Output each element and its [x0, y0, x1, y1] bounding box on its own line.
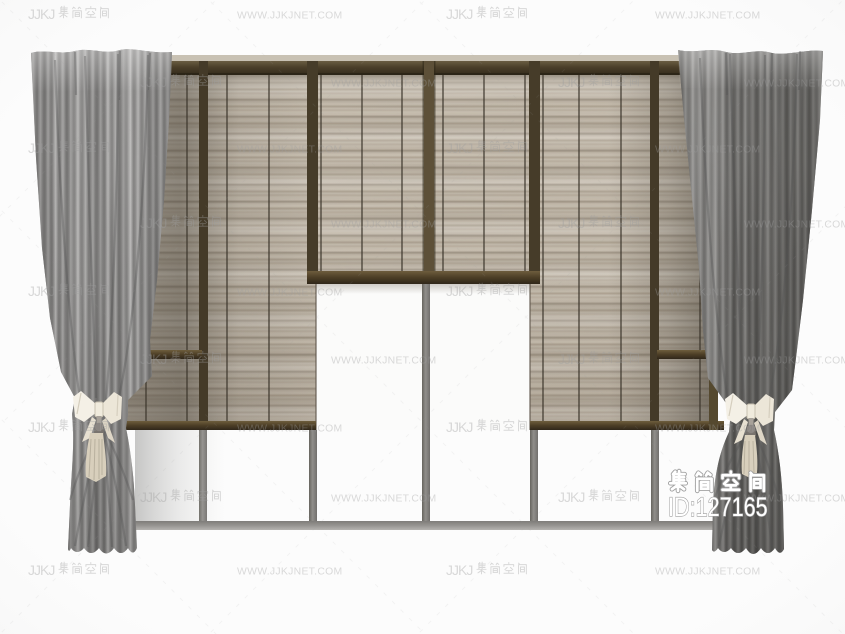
svg-text:ID:127165: ID:127165: [668, 493, 768, 523]
